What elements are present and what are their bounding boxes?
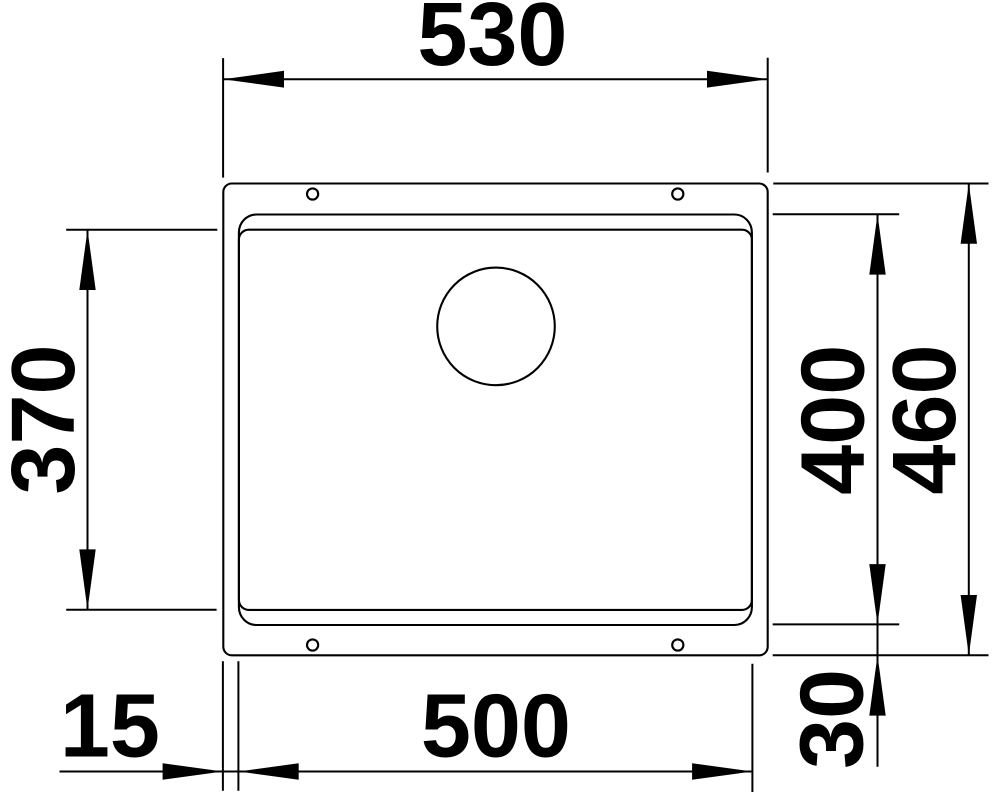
svg-text:30: 30: [783, 669, 883, 769]
svg-text:530: 530: [417, 0, 567, 85]
svg-text:460: 460: [875, 344, 975, 494]
svg-text:500: 500: [421, 677, 571, 777]
svg-text:370: 370: [0, 344, 94, 494]
svg-text:400: 400: [784, 345, 884, 495]
svg-text:15: 15: [60, 677, 160, 777]
